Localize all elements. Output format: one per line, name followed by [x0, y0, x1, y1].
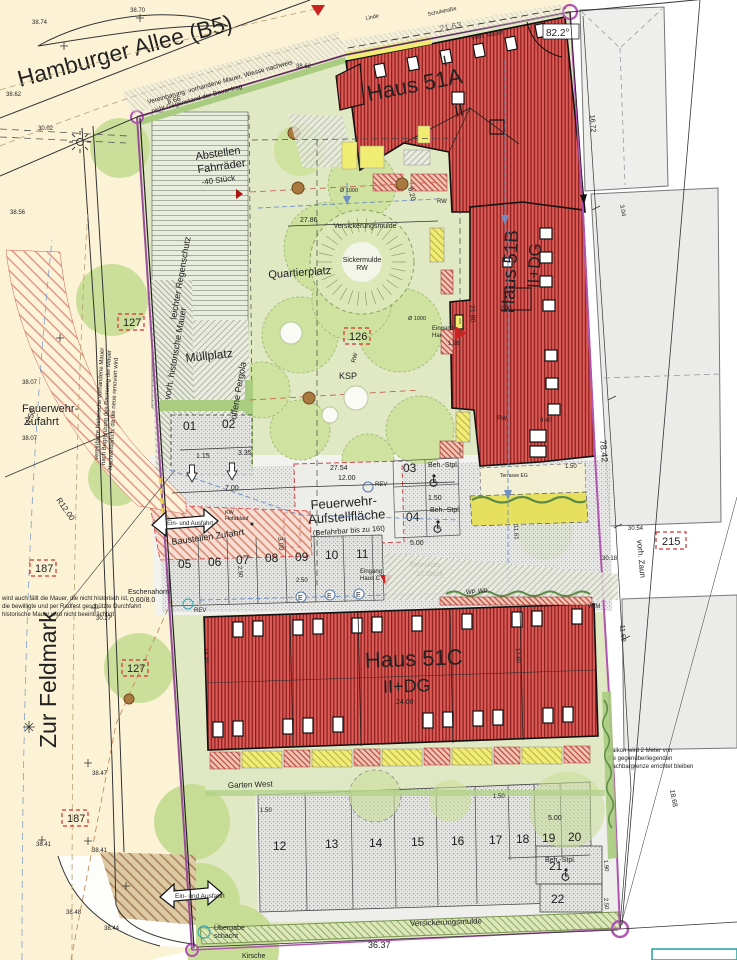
svg-text:12: 12 — [273, 839, 287, 853]
svg-text:38.07: 38.07 — [22, 380, 38, 386]
svg-text:08: 08 — [265, 551, 279, 565]
svg-text:30.18: 30.18 — [602, 556, 618, 562]
svg-text:18: 18 — [516, 832, 530, 846]
svg-text:Haus C: Haus C — [360, 576, 381, 582]
svg-text:16: 16 — [451, 834, 465, 848]
svg-text:09: 09 — [295, 550, 309, 564]
svg-text:Ein- und Ausfahrt: Ein- und Ausfahrt — [167, 521, 213, 527]
svg-text:RW: RW — [356, 265, 368, 272]
svg-text:Zur Feldmark: Zur Feldmark — [35, 611, 61, 748]
svg-text:Eingang: Eingang — [360, 569, 382, 575]
svg-text:E: E — [356, 592, 361, 599]
svg-text:Nachbargrenze errichtet bleibe: Nachbargrenze errichtet bleiben — [608, 764, 693, 770]
svg-text:30.27: 30.27 — [96, 616, 112, 622]
svg-text:11.60: 11.60 — [618, 625, 626, 643]
svg-text:die bewilligte und per Radfest: die bewilligte und per Radfest geschützt… — [2, 604, 141, 610]
svg-text:38.62: 38.62 — [296, 64, 312, 70]
svg-text:38.62: 38.62 — [6, 92, 22, 98]
svg-text:Beh.-Stpl.: Beh.-Stpl. — [430, 507, 461, 514]
svg-text:9.40: 9.40 — [540, 418, 552, 424]
svg-text:22: 22 — [551, 892, 565, 906]
svg-text:Garten West: Garten West — [228, 779, 274, 790]
svg-text:01: 01 — [183, 419, 197, 433]
svg-text:15: 15 — [411, 835, 425, 849]
svg-text:10: 10 — [325, 548, 339, 562]
svg-text:5.00: 5.00 — [548, 815, 562, 822]
svg-text:7.00: 7.00 — [225, 485, 239, 492]
svg-text:II+DG: II+DG — [383, 675, 431, 697]
svg-text:1.90: 1.90 — [602, 860, 609, 873]
svg-text:E: E — [327, 593, 332, 600]
svg-text:3.00: 3.00 — [276, 537, 284, 551]
svg-text:14: 14 — [369, 836, 383, 850]
svg-text:27.86: 27.86 — [300, 217, 318, 224]
svg-text:21.80: 21.80 — [468, 305, 476, 323]
svg-text:Beh.-Stpl.: Beh.-Stpl. — [545, 857, 576, 864]
svg-text:1.50: 1.50 — [565, 464, 577, 470]
svg-text:12.00: 12.00 — [338, 475, 356, 482]
svg-text:127: 127 — [123, 317, 141, 329]
svg-text:RW: RW — [437, 199, 447, 205]
svg-text:20: 20 — [568, 830, 582, 844]
svg-text:38.48: 38.48 — [66, 910, 82, 916]
svg-text:II+DG: II+DG — [524, 243, 545, 289]
svg-text:Kirsche: Kirsche — [242, 953, 265, 960]
svg-text:0.60/8.0: 0.60/8.0 — [130, 597, 155, 604]
svg-text:WP: WP — [466, 590, 476, 596]
svg-text:38.47: 38.47 — [92, 771, 108, 777]
svg-text:38.70: 38.70 — [130, 8, 146, 14]
svg-text:schacht: schacht — [214, 933, 238, 940]
svg-text:38.41: 38.41 — [36, 842, 52, 848]
svg-text:17: 17 — [489, 833, 503, 847]
svg-text:Ø 1000: Ø 1000 — [340, 188, 358, 194]
svg-text:Beh.-Stpl.: Beh.-Stpl. — [428, 462, 459, 469]
svg-text:2.30: 2.30 — [500, 306, 512, 312]
svg-text:Ø 1000: Ø 1000 — [408, 316, 426, 322]
svg-text:127: 127 — [127, 663, 145, 675]
svg-text:WP: WP — [478, 589, 488, 595]
svg-text:2.50: 2.50 — [602, 898, 609, 911]
svg-text:Eschenahorn: Eschenahorn — [128, 589, 169, 596]
svg-text:Sickermulde: Sickermulde — [343, 257, 382, 264]
svg-text:126: 126 — [349, 331, 367, 343]
svg-text:36.37: 36.37 — [368, 940, 391, 950]
svg-text:215: 215 — [662, 536, 680, 548]
svg-text:11.61: 11.61 — [512, 525, 519, 541]
svg-text:03: 03 — [403, 461, 417, 475]
svg-text:27.54: 27.54 — [330, 465, 348, 472]
svg-text:38.56: 38.56 — [10, 210, 26, 216]
svg-text:Haus 51B: Haus 51B — [498, 229, 523, 313]
svg-text:5.00: 5.00 — [410, 540, 424, 547]
svg-text:30.02: 30.02 — [38, 126, 54, 132]
svg-text:17.60: 17.60 — [514, 648, 521, 664]
svg-text:18.30: 18.30 — [202, 648, 209, 664]
svg-text:Ein- und Ausfahrt: Ein- und Ausfahrt — [175, 893, 225, 900]
svg-text:W/M: W/M — [588, 604, 600, 610]
svg-text:05: 05 — [178, 557, 192, 571]
svg-text:38.41: 38.41 — [92, 848, 108, 854]
svg-text:Hofablauf: Hofablauf — [225, 516, 249, 522]
svg-text:Terrasse EG: Terrasse EG — [500, 473, 528, 479]
svg-text:11: 11 — [356, 547, 369, 561]
svg-text:30.54: 30.54 — [628, 526, 644, 532]
svg-text:E: E — [298, 595, 303, 602]
svg-text:187: 187 — [67, 813, 85, 825]
svg-text:38.74: 38.74 — [32, 20, 48, 26]
svg-text:1.50: 1.50 — [260, 808, 272, 814]
svg-text:wird auch fällt die Mauer, die: wird auch fällt die Mauer, die nicht his… — [1, 596, 129, 602]
svg-text:1.15: 1.15 — [196, 453, 210, 460]
svg-text:2.50: 2.50 — [296, 578, 308, 584]
svg-text:04: 04 — [406, 510, 420, 524]
svg-text:1.50: 1.50 — [428, 495, 442, 502]
svg-text:13: 13 — [325, 837, 339, 851]
svg-text:REV: REV — [375, 482, 387, 488]
svg-text:78.42: 78.42 — [598, 439, 610, 462]
svg-text:24.00: 24.00 — [396, 699, 414, 706]
svg-text:2.50: 2.50 — [236, 566, 243, 579]
svg-text:Übergabe: Übergabe — [214, 924, 245, 932]
svg-text:1.96: 1.96 — [448, 341, 460, 347]
svg-text:82.2°: 82.2° — [546, 28, 569, 39]
svg-text:19: 19 — [542, 831, 556, 845]
svg-text:die gegenüberliegenden: die gegenüberliegenden — [608, 756, 672, 762]
svg-text:1.50: 1.50 — [493, 794, 505, 800]
svg-text:Haus 51C: Haus 51C — [364, 644, 463, 672]
svg-text:RW: RW — [497, 416, 507, 422]
svg-text:Balkon wird 2 Meter von: Balkon wird 2 Meter von — [608, 748, 672, 754]
svg-text:REV: REV — [194, 608, 206, 614]
svg-text:3.35: 3.35 — [238, 450, 252, 457]
svg-text:187: 187 — [35, 563, 53, 575]
svg-text:06: 06 — [208, 555, 222, 569]
svg-text:KSP: KSP — [339, 371, 357, 381]
svg-text:38.07: 38.07 — [22, 436, 38, 442]
